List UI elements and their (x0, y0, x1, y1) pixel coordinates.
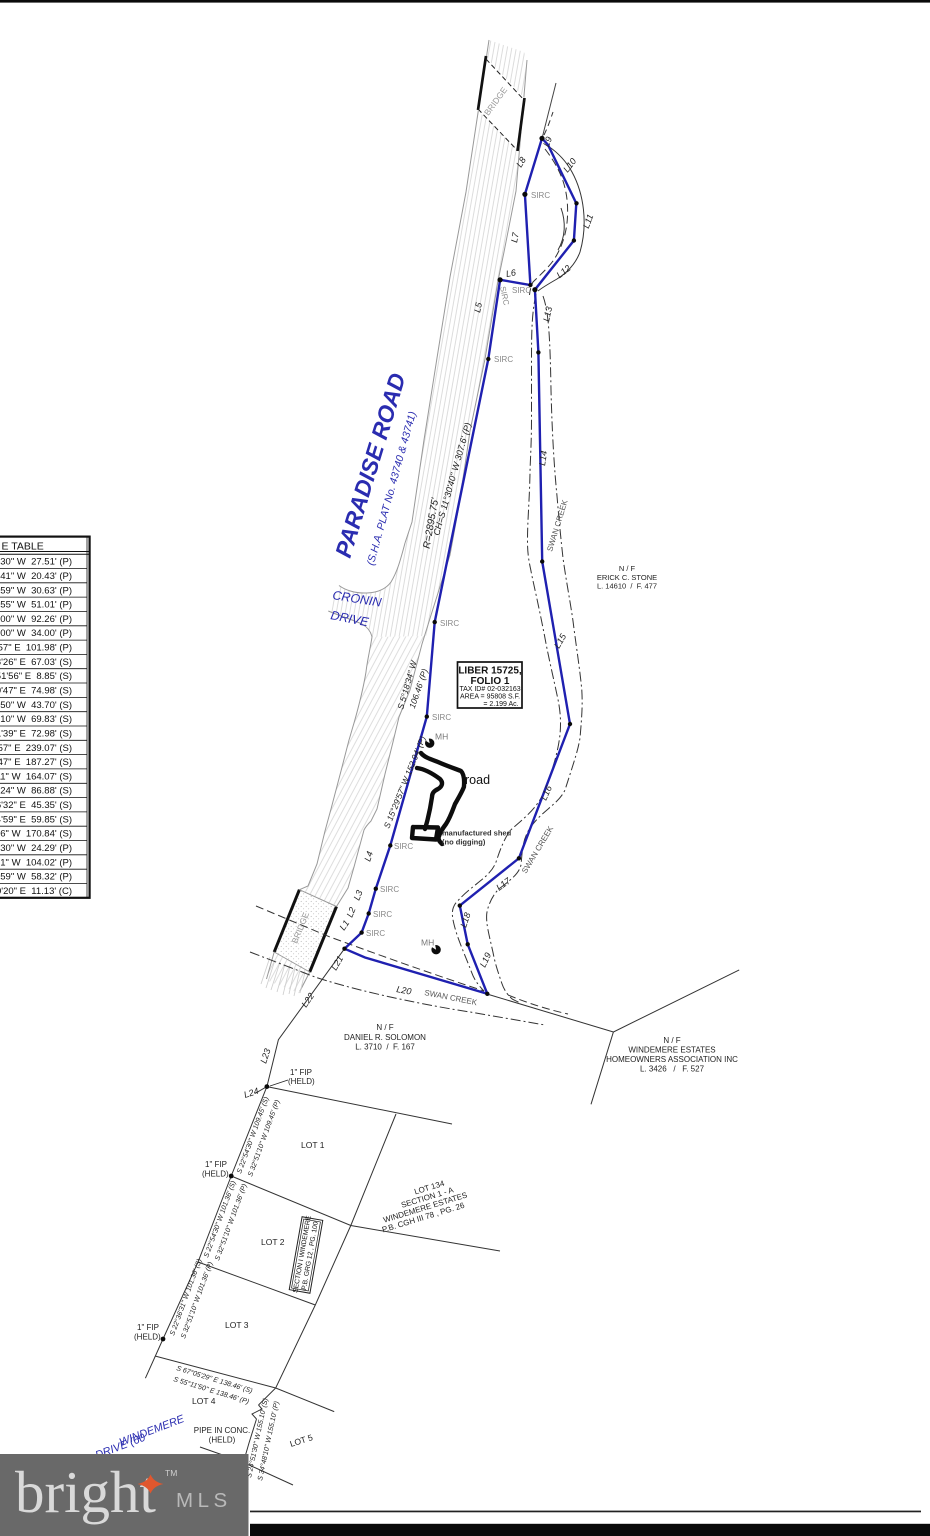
svg-text:E TABLE: E TABLE (2, 541, 44, 553)
svg-text:N / F: N / F (663, 1036, 680, 1045)
svg-text:L17 S 51°42'24" W 86.88' (S): L17 S 51°42'24" W 86.88' (S) (0, 786, 72, 797)
svg-text:WINDEMERE ESTATES: WINDEMERE ESTATES (628, 1046, 715, 1055)
svg-text:L6: L6 (505, 267, 517, 279)
svg-text:L24 S 53°20'20" E 11.13' (C): L24 S 53°20'20" E 11.13' (C) (0, 886, 72, 897)
svg-text:bright: bright (15, 1459, 157, 1525)
svg-text:SWAN CREEK: SWAN CREEK (520, 824, 556, 875)
svg-text:L. 3426 / F. 527: L. 3426 / F. 527 (640, 1065, 705, 1074)
svg-text:AREA = 95808 S.F.: AREA = 95808 S.F. (460, 694, 520, 701)
svg-text:MH: MH (421, 938, 434, 948)
svg-text:L19 S 22°04'59" E 59.85' (S): L19 S 22°04'59" E 59.85' (S) (0, 814, 72, 825)
svg-text:L2 S 29°10'41" W 20.43' (P): L2 S 29°10'41" W 20.43' (P) (0, 571, 72, 582)
svg-text:1" FIP: 1" FIP (137, 1323, 159, 1332)
svg-text:LOT 1: LOT 1 (301, 1140, 325, 1150)
svg-text:L4 S 11°14'55" W 51.01' (P): L4 S 11°14'55" W 51.01' (P) (0, 600, 72, 611)
svg-text:LOT 2: LOT 2 (261, 1237, 285, 1247)
svg-text:L13: L13 (541, 306, 554, 323)
svg-text:(HELD): (HELD) (209, 1436, 236, 1445)
svg-text:L17: L17 (494, 875, 513, 893)
svg-text:SIRC: SIRC (366, 929, 385, 938)
svg-text:LOT 3: LOT 3 (225, 1320, 249, 1330)
svg-text:MH: MH (435, 732, 448, 742)
svg-text:L7: L7 (509, 231, 521, 244)
svg-text:1" FIP: 1" FIP (290, 1068, 312, 1077)
svg-text:TAX ID# 02-032163: TAX ID# 02-032163 (459, 686, 520, 693)
svg-text:L9 N 79°51'56" E 8.85' (S): L9 N 79°51'56" E 8.85' (S) (0, 671, 72, 682)
svg-text:L10: L10 (561, 156, 578, 174)
svg-text:L3 S 20°18'59" W 30.63' (P): L3 S 20°18'59" W 30.63' (P) (0, 585, 72, 596)
svg-text:LOT 4: LOT 4 (192, 1396, 216, 1406)
svg-text:L14 S 02°06'57" E 239.07' (S): L14 S 02°06'57" E 239.07' (S) (0, 743, 72, 754)
svg-text:L4: L4 (362, 850, 375, 863)
svg-text:L21: L21 (329, 954, 345, 972)
svg-text:SIRC: SIRC (440, 619, 459, 628)
svg-text:L21 S 75°49'30" W 24.29' (P): L21 S 75°49'30" W 24.29' (P) (0, 843, 72, 854)
svg-text:= 2.199 Ac.: = 2.199 Ac. (483, 701, 518, 708)
svg-text:SIRC: SIRC (498, 286, 511, 307)
svg-text:L19: L19 (478, 951, 493, 969)
svg-text:L9: L9 (541, 135, 554, 148)
svg-text:L22 S 34°14'01" W 104.02' (P): L22 S 34°14'01" W 104.02' (P) (0, 857, 72, 868)
svg-text:L18 S 14°36'32" E 45.35' (S): L18 S 14°36'32" E 45.35' (S) (0, 800, 72, 811)
svg-text:L16: L16 (539, 784, 554, 802)
svg-text:SWAN CREEK: SWAN CREEK (545, 498, 569, 552)
svg-text:L12: L12 (555, 263, 573, 280)
svg-text:L16 S 21°22'11" W 164.07' (S): L16 S 21°22'11" W 164.07' (S) (0, 771, 72, 782)
svg-text:L14: L14 (537, 450, 549, 466)
svg-text:SIRC: SIRC (494, 355, 513, 364)
svg-text:L12 S 57°22'10" W 69.83' (S): L12 S 57°22'10" W 69.83' (S) (0, 714, 72, 725)
svg-text:(no digging): (no digging) (442, 838, 486, 847)
svg-text:L13 S 04°41'39" E 72.98' (S): L13 S 04°41'39" E 72.98' (S) (0, 729, 72, 740)
svg-text:L7 N 06°12'57" E 101.98' (P): L7 N 06°12'57" E 101.98' (P) (0, 643, 72, 654)
svg-text:SIRC: SIRC (512, 286, 531, 295)
svg-text:L24: L24 (243, 1086, 260, 1100)
svg-text:LIBER 15725,: LIBER 15725, (458, 666, 522, 677)
svg-text:SIRC: SIRC (432, 713, 451, 722)
svg-text:L2: L2 (345, 906, 358, 919)
svg-text:HOMEOWNERS ASSOCIATION INC: HOMEOWNERS ASSOCIATION INC (606, 1055, 738, 1064)
svg-text:TM: TM (165, 1468, 177, 1478)
svg-text:L. 14610 / F. 477: L. 14610 / F. 477 (597, 582, 657, 591)
svg-text:SIRC: SIRC (373, 910, 392, 919)
svg-text:L6 N 85°00'00" W 34.00' (P): L6 N 85°00'00" W 34.00' (P) (0, 628, 72, 639)
svg-text:L3: L3 (352, 889, 365, 902)
svg-text:PIPE IN CONC.: PIPE IN CONC. (194, 1426, 250, 1435)
svg-text:L11 S 09°36'50" W 43.70' (S): L11 S 09°36'50" W 43.70' (S) (0, 700, 72, 711)
svg-text:SIRC: SIRC (531, 191, 550, 200)
svg-text:L. 3710 / F. 167: L. 3710 / F. 167 (355, 1043, 415, 1052)
svg-text:L11: L11 (581, 213, 595, 230)
svg-text:LOT 5: LOT 5 (289, 1432, 315, 1449)
svg-text:L5 S 05°19'00" W 92.26' (P): L5 S 05°19'00" W 92.26' (P) (0, 614, 72, 625)
svg-text:L10 S 57°39'47" E 74.98' (S): L10 S 57°39'47" E 74.98' (S) (0, 686, 72, 697)
svg-text:SIRC: SIRC (394, 842, 413, 851)
svg-text:L1: L1 (337, 918, 351, 932)
svg-text:DANIEL R. SOLOMON: DANIEL R. SOLOMON (344, 1033, 426, 1042)
svg-text:(HELD): (HELD) (202, 1170, 229, 1179)
svg-text:L20 S 73°17'26" W 170.84' (S): L20 S 73°17'26" W 170.84' (S) (0, 829, 72, 840)
svg-text:manufactured shed: manufactured shed (442, 829, 512, 838)
svg-text:N / F: N / F (376, 1023, 393, 1032)
svg-text:road: road (465, 773, 490, 787)
svg-text:L1 S 36°09'30" W 27.51' (P): L1 S 36°09'30" W 27.51' (P) (0, 557, 72, 568)
svg-text:SIRC: SIRC (380, 885, 399, 894)
svg-text:L15 S 12°57'47" E 187.27' (S): L15 S 12°57'47" E 187.27' (S) (0, 757, 72, 768)
svg-text:(HELD): (HELD) (288, 1077, 315, 1086)
svg-text:L8 N 34°28'26" E 67.03' (S): L8 N 34°28'26" E 67.03' (S) (0, 657, 72, 668)
svg-text:(HELD): (HELD) (134, 1333, 161, 1342)
svg-text:SWAN CREEK: SWAN CREEK (424, 988, 479, 1007)
svg-text:L20: L20 (396, 984, 413, 996)
svg-text:1" FIP: 1" FIP (205, 1160, 227, 1169)
svg-text:L23 S 13°53'59" W 58.32' (P): L23 S 13°53'59" W 58.32' (P) (0, 872, 72, 883)
svg-text:L23: L23 (258, 1047, 272, 1064)
svg-text:MLS: MLS (176, 1489, 232, 1512)
svg-text:N / F: N / F (619, 564, 636, 573)
